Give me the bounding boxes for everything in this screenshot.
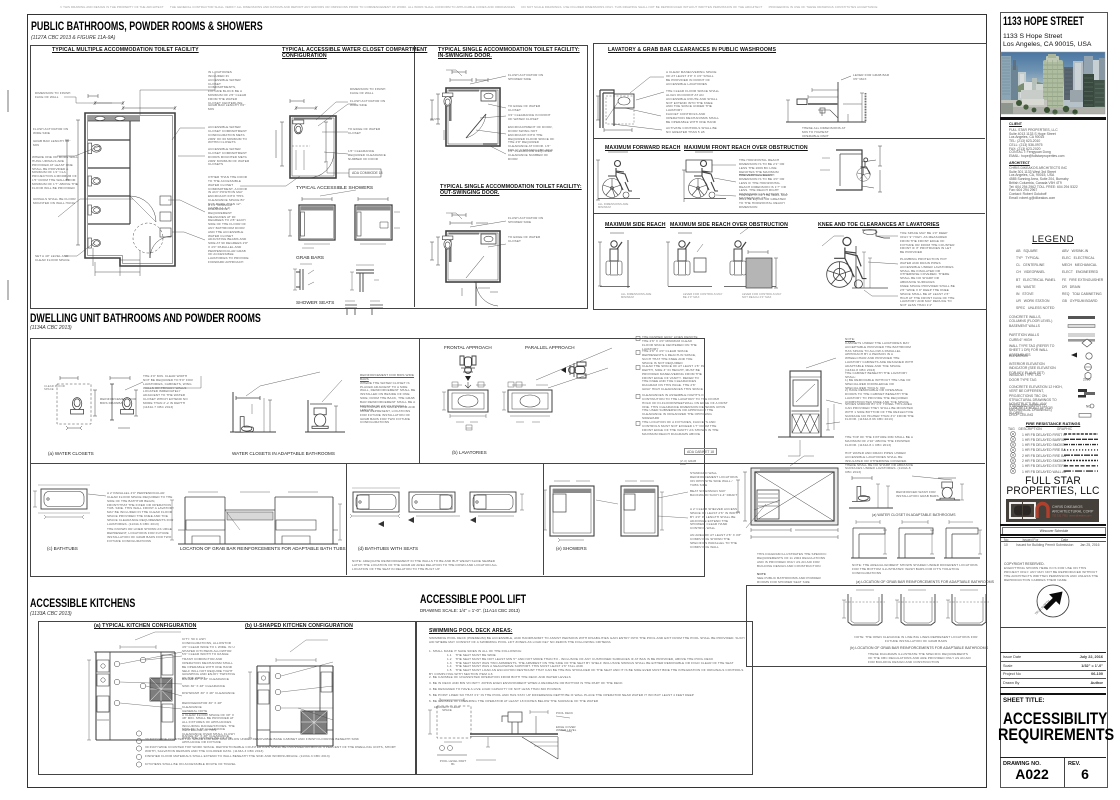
svg-text:NO: NO — [1086, 405, 1091, 409]
svg-text:ARCHITECTURAL CORP: ARCHITECTURAL CORP — [1052, 510, 1094, 514]
svg-text:753 531 7961 www.dikeakos.com: 753 531 7961 www.dikeakos.com — [1052, 514, 1091, 518]
svg-text:CHRIS DIKEAKOS: CHRIS DIKEAKOS — [1052, 505, 1083, 509]
svg-text:2099: 2099 — [1083, 378, 1091, 382]
